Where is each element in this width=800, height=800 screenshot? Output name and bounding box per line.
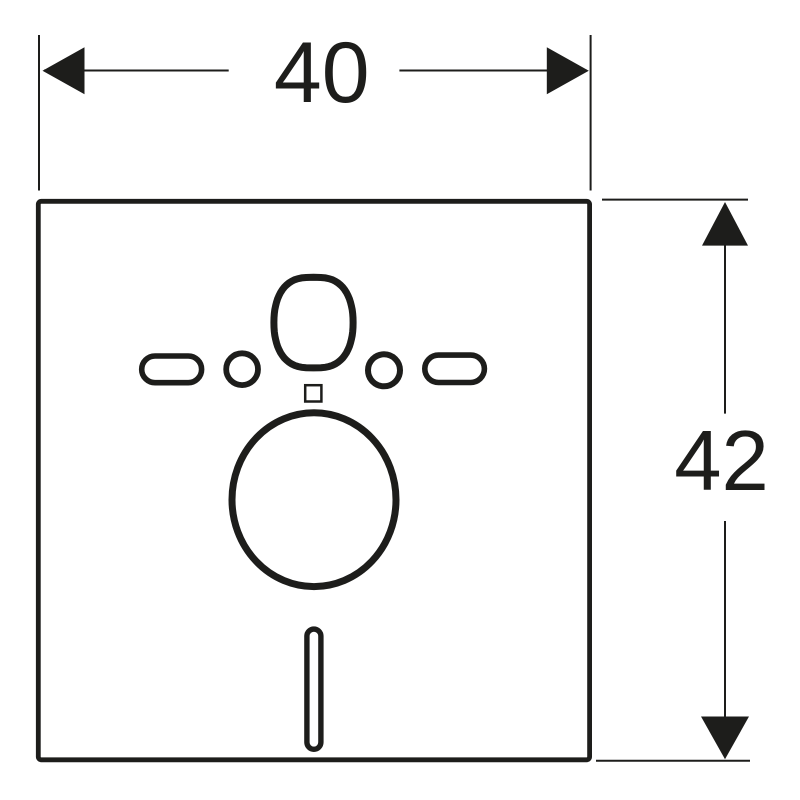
svg-text:40: 40	[274, 25, 370, 121]
svg-text:42: 42	[674, 414, 769, 509]
